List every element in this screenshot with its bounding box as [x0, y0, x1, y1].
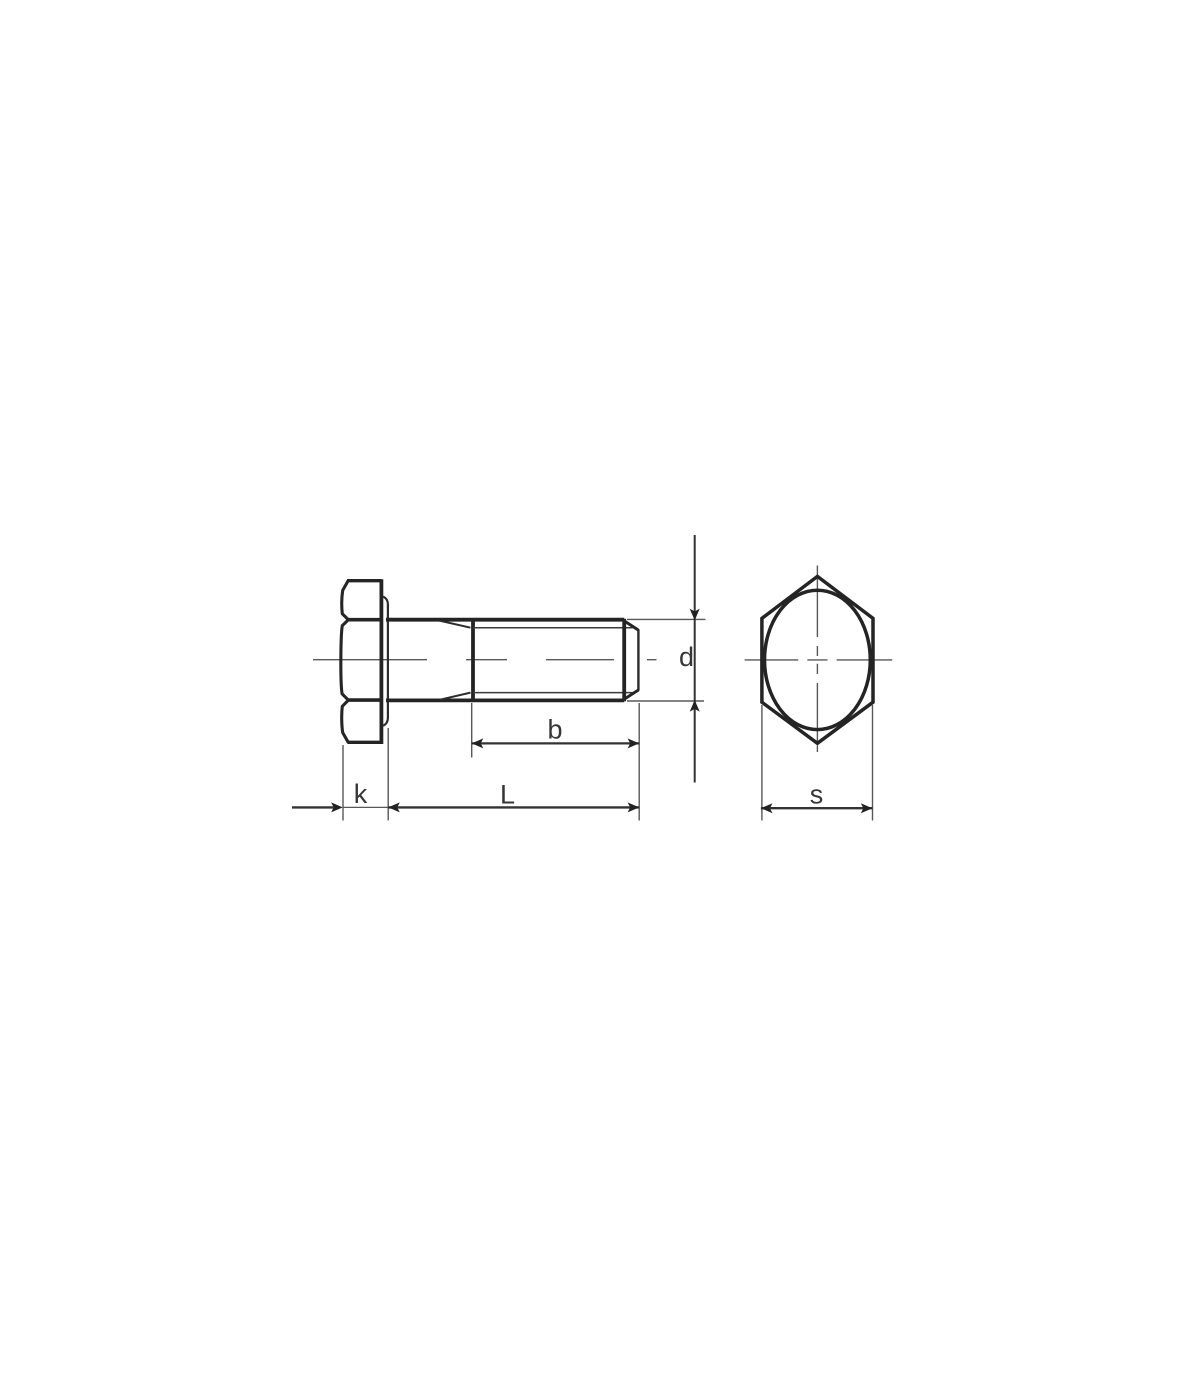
svg-text:s: s — [810, 780, 824, 810]
svg-text:b: b — [547, 715, 562, 745]
svg-text:L: L — [500, 779, 515, 809]
svg-text:d: d — [679, 642, 694, 672]
svg-text:k: k — [354, 779, 368, 809]
